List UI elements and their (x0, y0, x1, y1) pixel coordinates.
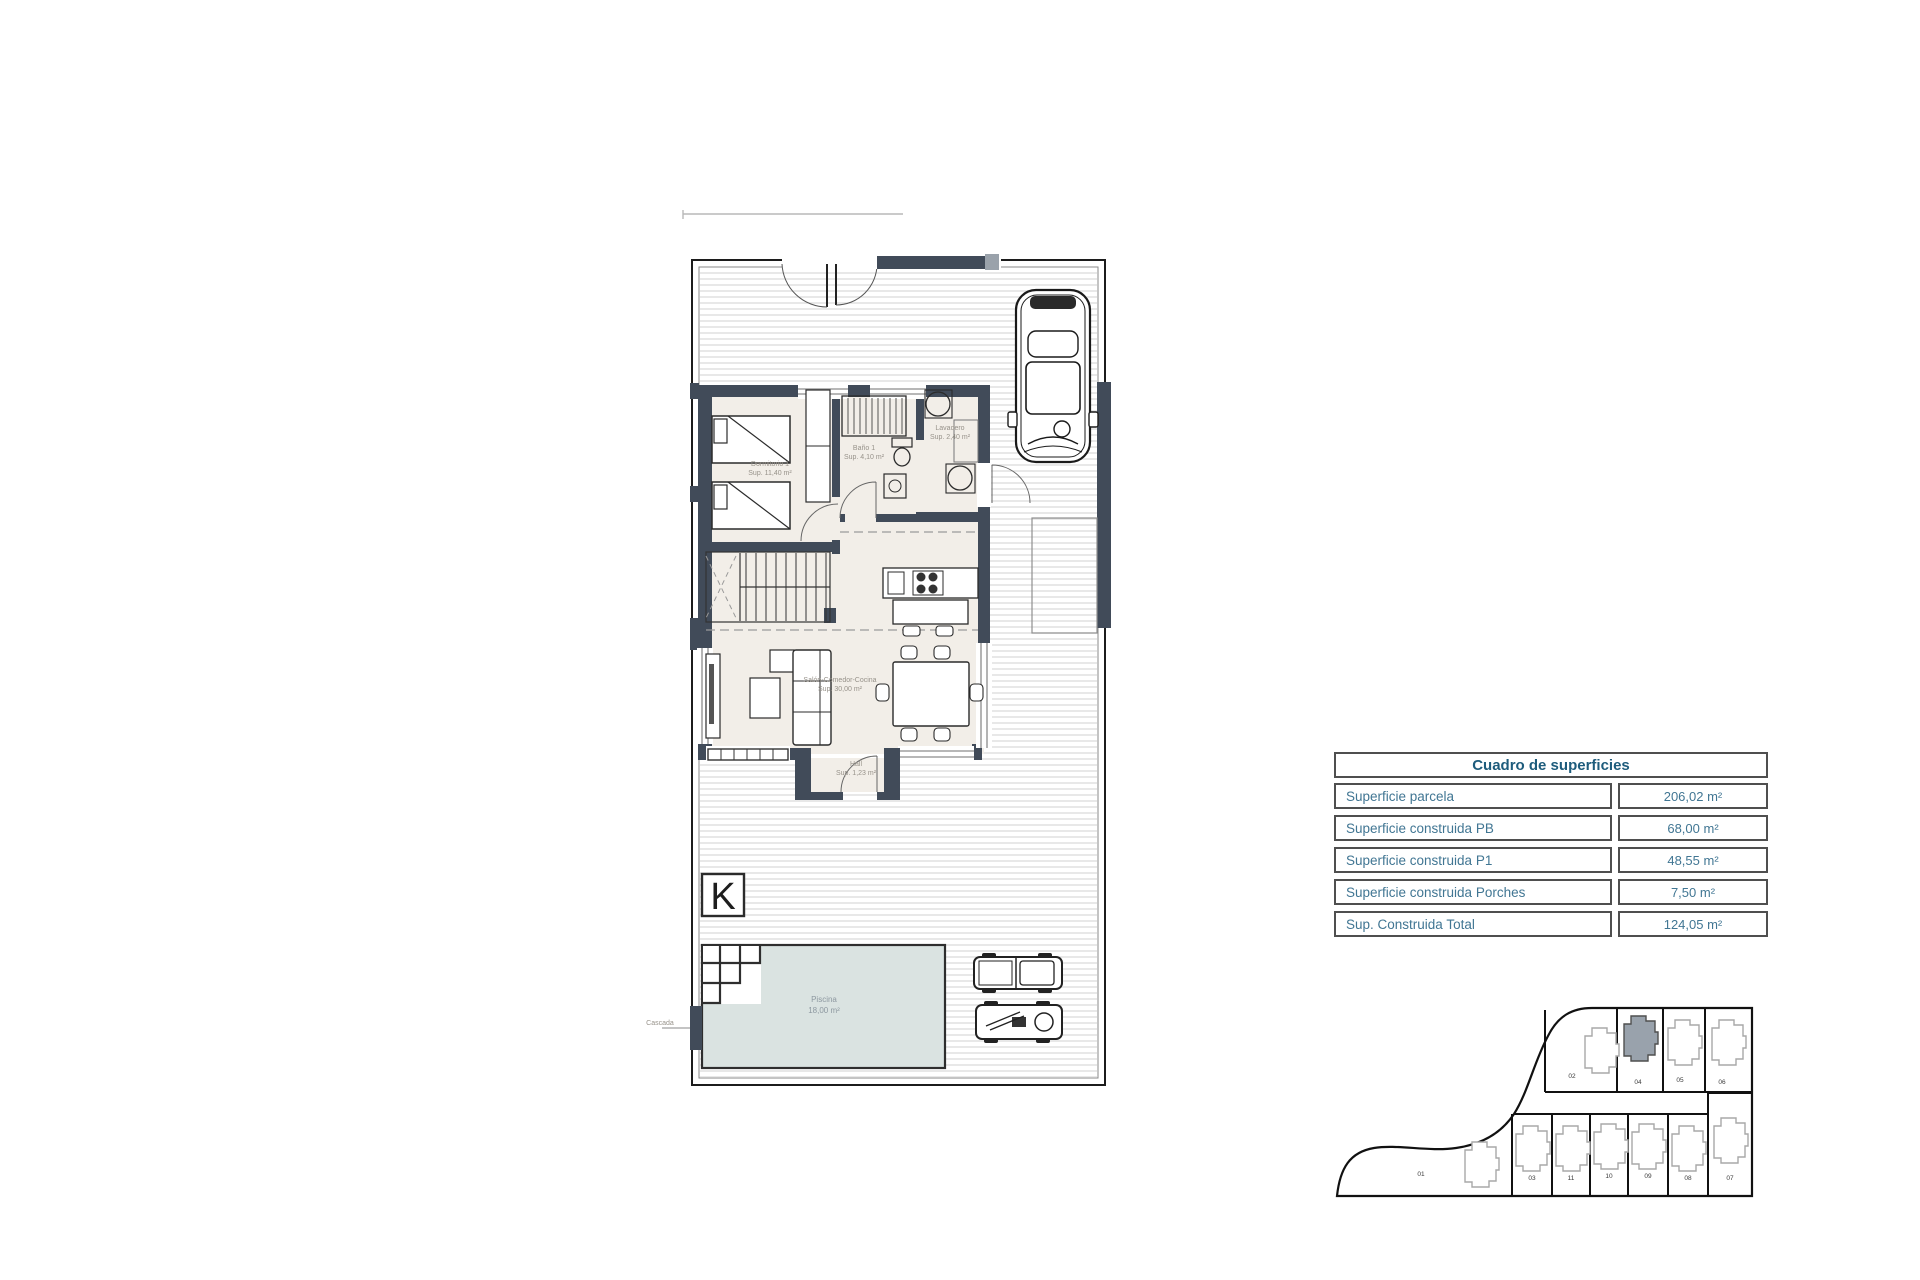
row-label: Superficie parcela (1334, 783, 1612, 809)
row-label: Superficie construida P1 (1334, 847, 1612, 873)
site-label-02: 02 (1568, 1073, 1576, 1080)
row-value: 68,00 m² (1618, 815, 1768, 841)
bedroom-label: Dormitorio 1 (751, 461, 789, 468)
pool: Piscina 18,00 m² (702, 945, 945, 1068)
hall-area: Sup. 1,23 m² (836, 770, 877, 777)
table-row: Superficie construida Porches 7,50 m² (1334, 879, 1768, 905)
car-icon (1008, 290, 1098, 462)
pool-label: Piscina (811, 995, 837, 1004)
row-value: 206,02 m² (1618, 783, 1768, 809)
vehicle-truck-icon (974, 953, 1062, 993)
architectural-sheet: Dormitorio 1 Sup. 11,40 m² Baño 1 Sup. 4… (0, 0, 1920, 1280)
row-value: 48,55 m² (1618, 847, 1768, 873)
table-row: Sup. Construida Total 124,05 m² (1334, 911, 1768, 937)
cascada-label: Cascada (646, 1020, 674, 1027)
pool-area: 18,00 m² (808, 1006, 840, 1015)
bedroom-area: Sup. 11,40 m² (748, 470, 792, 477)
side-wall (1097, 382, 1111, 628)
table-row: Superficie construida PB 68,00 m² (1334, 815, 1768, 841)
row-value: 124,05 m² (1618, 911, 1768, 937)
cascada: Cascada (646, 1006, 702, 1050)
car-gate (875, 252, 1001, 270)
row-label: Superficie construida Porches (1334, 879, 1612, 905)
site-label-05: 05 (1676, 1077, 1684, 1084)
table-row: Superficie construida P1 48,55 m² (1334, 847, 1768, 873)
site-label-07: 07 (1726, 1175, 1734, 1182)
bathroom-label: Baño 1 (853, 445, 875, 452)
site-label-09: 09 (1644, 1173, 1652, 1180)
site-label-04: 04 (1634, 1079, 1642, 1086)
laundry-label: Lavadero (935, 425, 964, 432)
house-floorplan: Dormitorio 1 Sup. 11,40 m² Baño 1 Sup. 4… (697, 383, 1030, 800)
k-symbol: K (710, 876, 735, 918)
table-row: Superficie parcela 206,02 m² (1334, 783, 1768, 809)
site-plan: 01 02 04 05 06 03 11 10 09 08 07 (1337, 1008, 1752, 1196)
plan-drawing: Dormitorio 1 Sup. 11,40 m² Baño 1 Sup. 4… (0, 0, 1920, 1280)
site-label-11: 11 (1568, 1175, 1575, 1182)
living-area: Sup. 30,00 m² (818, 686, 863, 693)
site-label-01: 01 (1417, 1171, 1425, 1178)
row-label: Sup. Construida Total (1334, 911, 1612, 937)
surfaces-table: Cuadro de superficies Superficie parcela… (1334, 752, 1768, 943)
row-value: 7,50 m² (1618, 879, 1768, 905)
site-label-08: 08 (1684, 1175, 1692, 1182)
vehicle-quad-icon (976, 1001, 1062, 1043)
row-label: Superficie construida PB (1334, 815, 1612, 841)
surfaces-table-title: Cuadro de superficies (1334, 752, 1768, 778)
bathroom-area: Sup. 4,10 m² (844, 454, 885, 461)
plot-plan: Dormitorio 1 Sup. 11,40 m² Baño 1 Sup. 4… (646, 210, 1111, 1085)
street-edge (683, 210, 903, 219)
site-label-06: 06 (1718, 1079, 1726, 1086)
living-label: Salón-Comedor-Cocina (803, 677, 876, 684)
hall-label: Hall (850, 761, 863, 768)
laundry-area: Sup. 2,40 m² (930, 434, 971, 441)
site-label-10: 10 (1605, 1173, 1613, 1180)
site-label-03: 03 (1528, 1175, 1536, 1182)
